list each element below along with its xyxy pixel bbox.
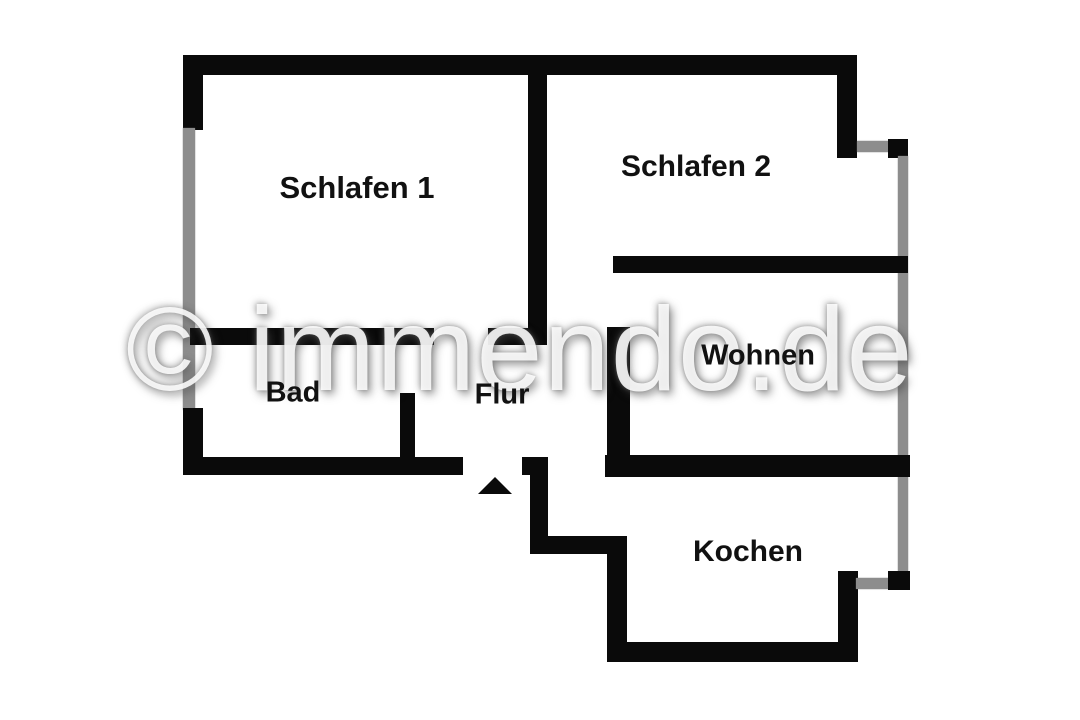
- wall-kochen-right: [838, 571, 858, 662]
- entrance-arrow-icon: [478, 477, 512, 494]
- room-label-schlafen1: Schlafen 1: [279, 170, 434, 206]
- wall-kochen-bottom: [615, 642, 858, 662]
- room-label-schlafen2: Schlafen 2: [621, 150, 771, 184]
- room-label-kochen: Kochen: [693, 535, 803, 569]
- room-label-bad: Bad: [266, 377, 321, 410]
- wall-wohnen-kochen-divider: [605, 455, 910, 477]
- wall-top: [183, 55, 857, 75]
- corner-post-kochen: [888, 571, 910, 590]
- window-connector-kochen: [856, 578, 890, 589]
- room-label-wohnen: Wohnen: [701, 340, 815, 373]
- window-connector-top-right: [857, 141, 890, 152]
- wall-right-upper: [837, 55, 857, 158]
- wall-left-upper: [183, 55, 203, 130]
- floor-plan: © immendo.de Schlafen 1 Schlafen 2 Bad F…: [0, 0, 1080, 720]
- wall-schlafen2-wohnen-divider: [613, 256, 908, 273]
- room-label-flur: Flur: [475, 379, 530, 412]
- wall-bottom-left: [183, 457, 463, 475]
